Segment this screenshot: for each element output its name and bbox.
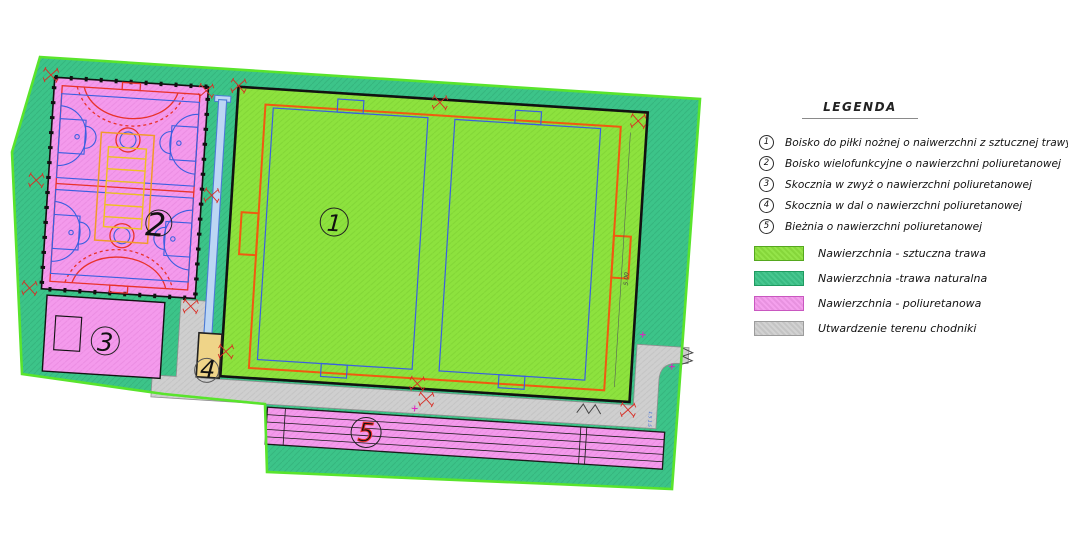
- marker-number-2: 2: [144, 205, 167, 244]
- legend-item-label: Boisko wielofunkcyjne o nawierzchni poli…: [785, 158, 1061, 170]
- legend-item-label: Bieżnia o nawierzchni poliuretanowej: [785, 221, 982, 233]
- marker-number-1: 1: [326, 211, 342, 238]
- legend-number-1-icon: 1: [759, 135, 774, 150]
- legend-item-2: 2 Boisko wielofunkcyjne o nawierzchni po…: [748, 153, 1066, 174]
- legend-item-5: 5 Bieżnia o nawierzchni poliuretanowej: [748, 216, 1066, 237]
- multifunctional-court: 2: [41, 77, 208, 298]
- swatch-natural-grass: [754, 271, 804, 286]
- legend-panel: LEGENDA 1 Boisko do piłki nożnej o naiwe…: [748, 100, 1066, 346]
- legend-swatches: Nawierzchnia - sztuczna trawa Nawierzchn…: [748, 246, 1066, 336]
- marker-number-5: 5: [357, 418, 375, 449]
- swatch-polyurethane: [754, 296, 804, 311]
- legend-number-4-icon: 4: [759, 198, 774, 213]
- legend-item-label: Skocznia w zwyż o nawierzchni poliuretan…: [785, 179, 1032, 191]
- swatch-label: Nawierzchnia - poliuretanowa: [818, 297, 981, 310]
- field-dimension-text: 5.00: [623, 272, 631, 286]
- legend-number-5-icon: 5: [759, 219, 774, 234]
- legend-item-label: Boisko do piłki nożnej o naiwerzchni z s…: [785, 137, 1068, 149]
- swatch-row-polyurethane: Nawierzchnia - poliuretanowa: [748, 296, 1066, 311]
- legend-item-1: 1 Boisko do piłki nożnej o naiwerzchni z…: [748, 132, 1066, 153]
- site-plan-page: 5 5.00 1: [0, 0, 1068, 541]
- swatch-walkway: [754, 321, 804, 336]
- legend-title: LEGENDA: [802, 100, 918, 119]
- legend-items: 1 Boisko do piłki nożnej o naiwerzchni z…: [748, 132, 1066, 237]
- swatch-label: Nawierzchnia -trawa naturalna: [818, 272, 987, 285]
- facilities-group: 5 5.00 1: [13, 66, 708, 471]
- football-field: 5.00 1: [220, 87, 647, 402]
- swatch-label: Nawierzchnia - sztuczna trawa: [818, 247, 986, 260]
- marker-number-3: 3: [96, 327, 114, 357]
- legend-number-2-icon: 2: [759, 156, 774, 171]
- legend-item-4: 4 Skocznia w dal o nawierzchni poliureta…: [748, 195, 1066, 216]
- swatch-artificial-turf: [754, 246, 804, 261]
- marker-number-4: 4: [199, 355, 216, 384]
- swatch-row-walkway: Utwardzenie terenu chodniki: [748, 321, 1066, 336]
- legend-item-label: Skocznia w dal o nawierzchni poliuretano…: [785, 200, 1022, 212]
- swatch-label: Utwardzenie terenu chodniki: [818, 322, 976, 335]
- legend-number-3-icon: 3: [759, 177, 774, 192]
- swatch-row-artificial-turf: Nawierzchnia - sztuczna trawa: [748, 246, 1066, 261]
- swatch-row-natural-grass: Nawierzchnia -trawa naturalna: [748, 271, 1066, 286]
- path-dimension-text: 1.5 1.5: [646, 411, 653, 427]
- high-jump-area: 3: [42, 295, 165, 378]
- legend-item-3: 3 Skocznia w zwyż o nawierzchni poliuret…: [748, 174, 1066, 195]
